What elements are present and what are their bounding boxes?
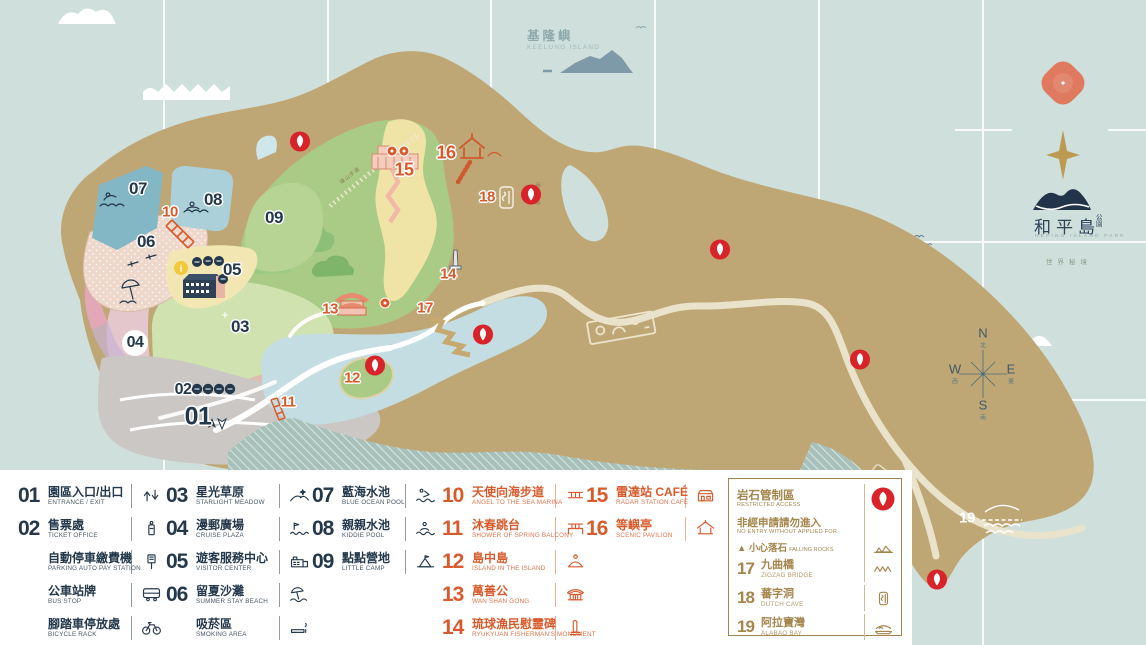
legend-item-name-cn: 售票處 <box>48 519 123 532</box>
logo-tagline: 世界秘境 <box>1046 256 1092 266</box>
compass-n: N <box>978 326 987 341</box>
legend-item-name-cn: 親親水池 <box>342 519 397 532</box>
legend-item-03: 03星光草原STARLIGHT MEADOW <box>166 482 312 509</box>
temple-icon <box>562 585 588 604</box>
paystation-icon <box>138 552 164 571</box>
legend-item-name-en: BUS STOP <box>48 598 123 605</box>
cafe-icon <box>692 486 718 505</box>
legend-item-name-en: BLUE OCEAN POOL <box>342 499 397 506</box>
legend-divider <box>279 517 280 541</box>
restricted-access-box: 岩石管制區 RESTRICTED ACCESS 非經申請請勿進入 NO ENTR… <box>728 478 902 636</box>
map-marker-12: 12 <box>344 370 360 387</box>
legend-divider <box>131 616 132 640</box>
legend-divider <box>555 550 556 574</box>
legend-item-number: 09 <box>312 550 342 574</box>
legend-divider <box>131 583 132 607</box>
legend-item-number: 18 <box>737 588 761 608</box>
keelung-island-label: 基隆嶼 KEELUNG ISLAND <box>527 25 600 51</box>
restricted-pin-icon <box>365 355 386 381</box>
poi-badge-icon <box>399 146 410 157</box>
map-marker-03: 03 <box>231 317 249 337</box>
map-marker-07: 07 <box>129 179 147 199</box>
legend-item-09: 09點點營地LITTLE CAMP <box>312 548 438 575</box>
legend-item-name-cn: 點點營地 <box>342 552 397 565</box>
legend-item-name-cn: 萬善公 <box>472 585 547 598</box>
legend-item-number: 05 <box>166 550 196 574</box>
falling-rocks-warning: ▲ 小心落石FALLING ROCKS <box>737 540 864 554</box>
logo-title-en: HEPING ISLAND PARK <box>1035 234 1126 239</box>
legend-divider <box>685 517 686 541</box>
map-marker-02: 02 <box>175 381 192 399</box>
compass-s: S <box>979 398 988 413</box>
restricted-pin-icon <box>850 349 871 375</box>
restricted-pin-icon <box>864 484 901 514</box>
legend-item-01: 01園區入口/出口ENTRANCE / EXIT <box>18 482 164 509</box>
legend-divider <box>405 484 406 508</box>
legend-item-name-cn: 園區入口/出口 <box>48 486 123 499</box>
legend-item-12: 12島中島ISLAND IN THE ISLAND <box>442 548 588 575</box>
legend-divider <box>555 484 556 508</box>
beach-icon <box>286 585 312 604</box>
restricted-subtitle-cn: 非經申請請勿進入 <box>737 517 864 529</box>
restricted-item-19: 19阿拉寶灣ALABAO BAY <box>737 614 901 640</box>
restricted-title-en: RESTRICTED ACCESS <box>737 502 864 508</box>
legend-column-4: 10天使向海步道ANGEL TO THE SEA MARINA11沐春跳台SHO… <box>442 482 588 645</box>
map-marker-13: 13 <box>322 301 338 318</box>
map-marker-01: 01 <box>185 403 212 432</box>
legend-divider <box>279 616 280 640</box>
legend-item-number: 17 <box>737 559 761 579</box>
cave-icon <box>864 585 901 611</box>
legend-item-name-cn: 九曲橋 <box>761 559 813 572</box>
legend-item-number: 12 <box>442 550 472 574</box>
legend-item-name-en: ISLAND IN THE ISLAND <box>472 565 547 572</box>
legend-item-name-en: BICYCLE RACK <box>48 631 123 638</box>
visitor-icon <box>286 552 312 571</box>
compass-e: E <box>1007 362 1016 377</box>
map-marker-14: 14 <box>440 266 456 283</box>
map-marker-19: 19 <box>959 510 975 527</box>
ticket-icon <box>138 519 164 538</box>
zigzag-icon <box>864 556 901 582</box>
legend-item-name-cn: 自動停車繳費機 <box>48 552 123 565</box>
legend-item-name-cn: 島中島 <box>472 552 547 565</box>
legend-panel: 01園區入口/出口ENTRANCE / EXIT02售票處TICKET OFFI… <box>0 470 912 645</box>
legend-item-number: 06 <box>166 583 196 607</box>
restricted-pin-icon <box>290 131 311 157</box>
legend-divider <box>555 583 556 607</box>
legend-column-5: 15雷達站 CAFÉRADAR STATION CAFÉ16等嶼亭SCENIC … <box>586 482 718 548</box>
bus-icon <box>138 585 164 604</box>
entrance-icon <box>138 486 164 505</box>
legend-item-name-cn: 阿拉寶灣 <box>761 617 805 630</box>
map-marker-17: 17 <box>417 300 433 317</box>
island-icon <box>562 552 588 571</box>
poi-badge-icon <box>387 146 398 157</box>
map-marker-16: 16 <box>436 143 455 164</box>
legend-column-2: 03星光草原STARLIGHT MEADOW04漫郵廣場CRUISE PLAZA… <box>166 482 312 645</box>
meadow-icon <box>286 486 312 505</box>
legend-item-name-en: ENTRANCE / EXIT <box>48 499 123 506</box>
map-marker-10: 10 <box>162 204 178 221</box>
legend-item-number: 15 <box>586 484 616 508</box>
restricted-item-18: 18蕃字洞DUTCH CAVE <box>737 585 901 611</box>
legend-item: 自動停車繳費機PARKING AUTO PAY STATION <box>18 548 164 575</box>
legend-item: 公車站牌BUS STOP <box>18 581 164 608</box>
restricted-pin-icon <box>473 324 494 350</box>
legend-item-name-cn: 公車站牌 <box>48 585 123 598</box>
bicycle-icon <box>138 618 164 637</box>
park-map-poster: i 基隆嶼 KEELUNG ISLAND N 北 W 西 E 東 S 南 和平島… <box>0 0 1146 645</box>
map-marker-04: 04 <box>122 330 148 356</box>
legend-item-number: 08 <box>312 517 342 541</box>
falling-rocks-icon <box>864 538 901 556</box>
pool-08 <box>170 166 233 231</box>
legend-item-04: 04漫郵廣場CRUISE PLAZA <box>166 515 312 542</box>
legend-item-name-en: RYUKYUAN FISHERMAN'S MONUMENT <box>472 631 547 638</box>
logo-title-sub: 公園 <box>1096 214 1104 228</box>
legend-item-name-cn: 遊客服務中心 <box>196 552 271 565</box>
legend-column-1: 01園區入口/出口ENTRANCE / EXIT02售票處TICKET OFFI… <box>18 482 164 645</box>
legend-item-name-en: STARLIGHT MEADOW <box>196 499 271 506</box>
poi-badge-icon <box>380 298 391 309</box>
legend-divider <box>405 550 406 574</box>
restricted-pin-icon <box>521 184 542 210</box>
map-marker-09: 09 <box>265 208 283 228</box>
legend-item-02: 02售票處TICKET OFFICE <box>18 515 164 542</box>
legend-item-name-en: SCENIC PAVILION <box>616 532 677 539</box>
map-marker-18: 18 <box>479 189 495 206</box>
legend-item-name-cn: 漫郵廣場 <box>196 519 271 532</box>
legend-item-name-en: PARKING AUTO PAY STATION <box>48 565 123 572</box>
legend-item-number: 16 <box>586 517 616 541</box>
legend-item-13: 13萬善公WAN SHAN GONG <box>442 581 588 608</box>
legend-divider <box>279 583 280 607</box>
map-marker-08: 08 <box>204 190 222 210</box>
map-marker-05: 05 <box>223 260 241 280</box>
legend-item-name-cn: 琉球漁民慰靈碑 <box>472 618 547 631</box>
legend-item-name-en: CRUISE PLAZA <box>196 532 271 539</box>
bay-icon <box>864 614 901 640</box>
legend-item-name-en: VISITOR CENTER <box>196 565 271 572</box>
legend-item-name-cn: 雷達站 CAFÉ <box>616 486 677 499</box>
legend-item-name-en: SHOWER OF SPRING BALCONY <box>472 532 547 539</box>
legend-item-name-cn: 沐春跳台 <box>472 519 547 532</box>
legend-item-name-en: SMOKING AREA <box>196 631 271 638</box>
legend-item-name-cn: 天使向海步道 <box>472 486 547 499</box>
legend-item-name-cn: 留夏沙灘 <box>196 585 271 598</box>
legend-divider <box>555 616 556 640</box>
legend-item-name-cn: 等嶼亭 <box>616 519 677 532</box>
legend-item-name-en: KIDDIE POOL <box>342 532 397 539</box>
legend-item-name-cn: 星光草原 <box>196 486 271 499</box>
legend-item-number: 10 <box>442 484 472 508</box>
legend-item-number: 07 <box>312 484 342 508</box>
plaza-icon <box>286 519 312 538</box>
legend-item-number: 14 <box>442 616 472 640</box>
legend-item-name-en: ALABAO BAY <box>761 630 805 637</box>
legend-item: 腳踏車停放處BICYCLE RACK <box>18 614 164 641</box>
legend-item-name-en: TICKET OFFICE <box>48 532 123 539</box>
camp-icon <box>412 552 438 571</box>
restricted-pin-icon <box>927 569 948 595</box>
legend-item-number: 01 <box>18 484 48 508</box>
kiddie-icon <box>412 519 438 538</box>
restricted-item-17: 17九曲橋ZIGZAG BRIDGE <box>737 556 901 582</box>
legend-divider <box>555 517 556 541</box>
legend-item-number: 04 <box>166 517 196 541</box>
legend-divider <box>131 550 132 574</box>
compass-w: W <box>949 362 961 377</box>
legend-item-05: 05遊客服務中心VISITOR CENTER <box>166 548 312 575</box>
pool-icon <box>412 486 438 505</box>
legend-item: 吸菸區SMOKING AREA <box>166 614 312 641</box>
legend-item-11: 11沐春跳台SHOWER OF SPRING BALCONY <box>442 515 588 542</box>
legend-divider <box>685 484 686 508</box>
restricted-pin-icon <box>710 239 731 265</box>
legend-item-name-en: DUTCH CAVE <box>761 601 803 608</box>
walk-icon <box>562 486 588 505</box>
legend-item-07: 07藍海水池BLUE OCEAN POOL <box>312 482 438 509</box>
map-marker-06: 06 <box>137 232 155 252</box>
pavilion-icon <box>692 519 718 538</box>
legend-item-name-cn: 吸菸區 <box>196 618 271 631</box>
legend-item-name-cn: 蕃字洞 <box>761 588 803 601</box>
legend-item-name-en: ANGEL TO THE SEA MARINA <box>472 499 547 506</box>
map-marker-15: 15 <box>394 160 413 181</box>
legend-item-number: 02 <box>18 517 48 541</box>
legend-item-name-cn: 藍海水池 <box>342 486 397 499</box>
legend-item-name-en: WAN SHAN GONG <box>472 598 547 605</box>
legend-item-name-cn: 腳踏車停放處 <box>48 618 123 631</box>
legend-item-number: 11 <box>442 517 472 541</box>
restricted-title-cn: 岩石管制區 <box>737 490 864 502</box>
legend-item-10: 10天使向海步道ANGEL TO THE SEA MARINA <box>442 482 588 509</box>
legend-item-name-en: ZIGZAG BRIDGE <box>761 572 813 579</box>
legend-item-name-en: LITTLE CAMP <box>342 565 397 572</box>
legend-divider <box>131 517 132 541</box>
legend-item-number: 03 <box>166 484 196 508</box>
legend-divider <box>279 550 280 574</box>
smoking-icon <box>286 618 312 637</box>
legend-item-06: 06留夏沙灘SUMMER STAY BEACH <box>166 581 312 608</box>
legend-item-08: 08親親水池KIDDIE POOL <box>312 515 438 542</box>
legend-divider <box>131 484 132 508</box>
legend-divider <box>279 484 280 508</box>
restricted-subtitle-en: NO ENTRY WITHOUT APPLIED FOR <box>737 529 864 535</box>
legend-item-number: 19 <box>737 617 761 637</box>
legend-divider <box>405 517 406 541</box>
legend-column-3: 07藍海水池BLUE OCEAN POOL08親親水池KIDDIE POOL09… <box>312 482 438 581</box>
legend-item-name-en: SUMMER STAY BEACH <box>196 598 271 605</box>
legend-item-16: 16等嶼亭SCENIC PAVILION <box>586 515 718 542</box>
legend-item-number: 13 <box>442 583 472 607</box>
legend-item-15: 15雷達站 CAFÉRADAR STATION CAFÉ <box>586 482 718 509</box>
legend-item-14: 14琉球漁民慰靈碑RYUKYUAN FISHERMAN'S MONUMENT <box>442 614 588 641</box>
map-marker-11: 11 <box>281 394 296 411</box>
legend-item-name-en: RADAR STATION CAFÉ <box>616 499 677 506</box>
